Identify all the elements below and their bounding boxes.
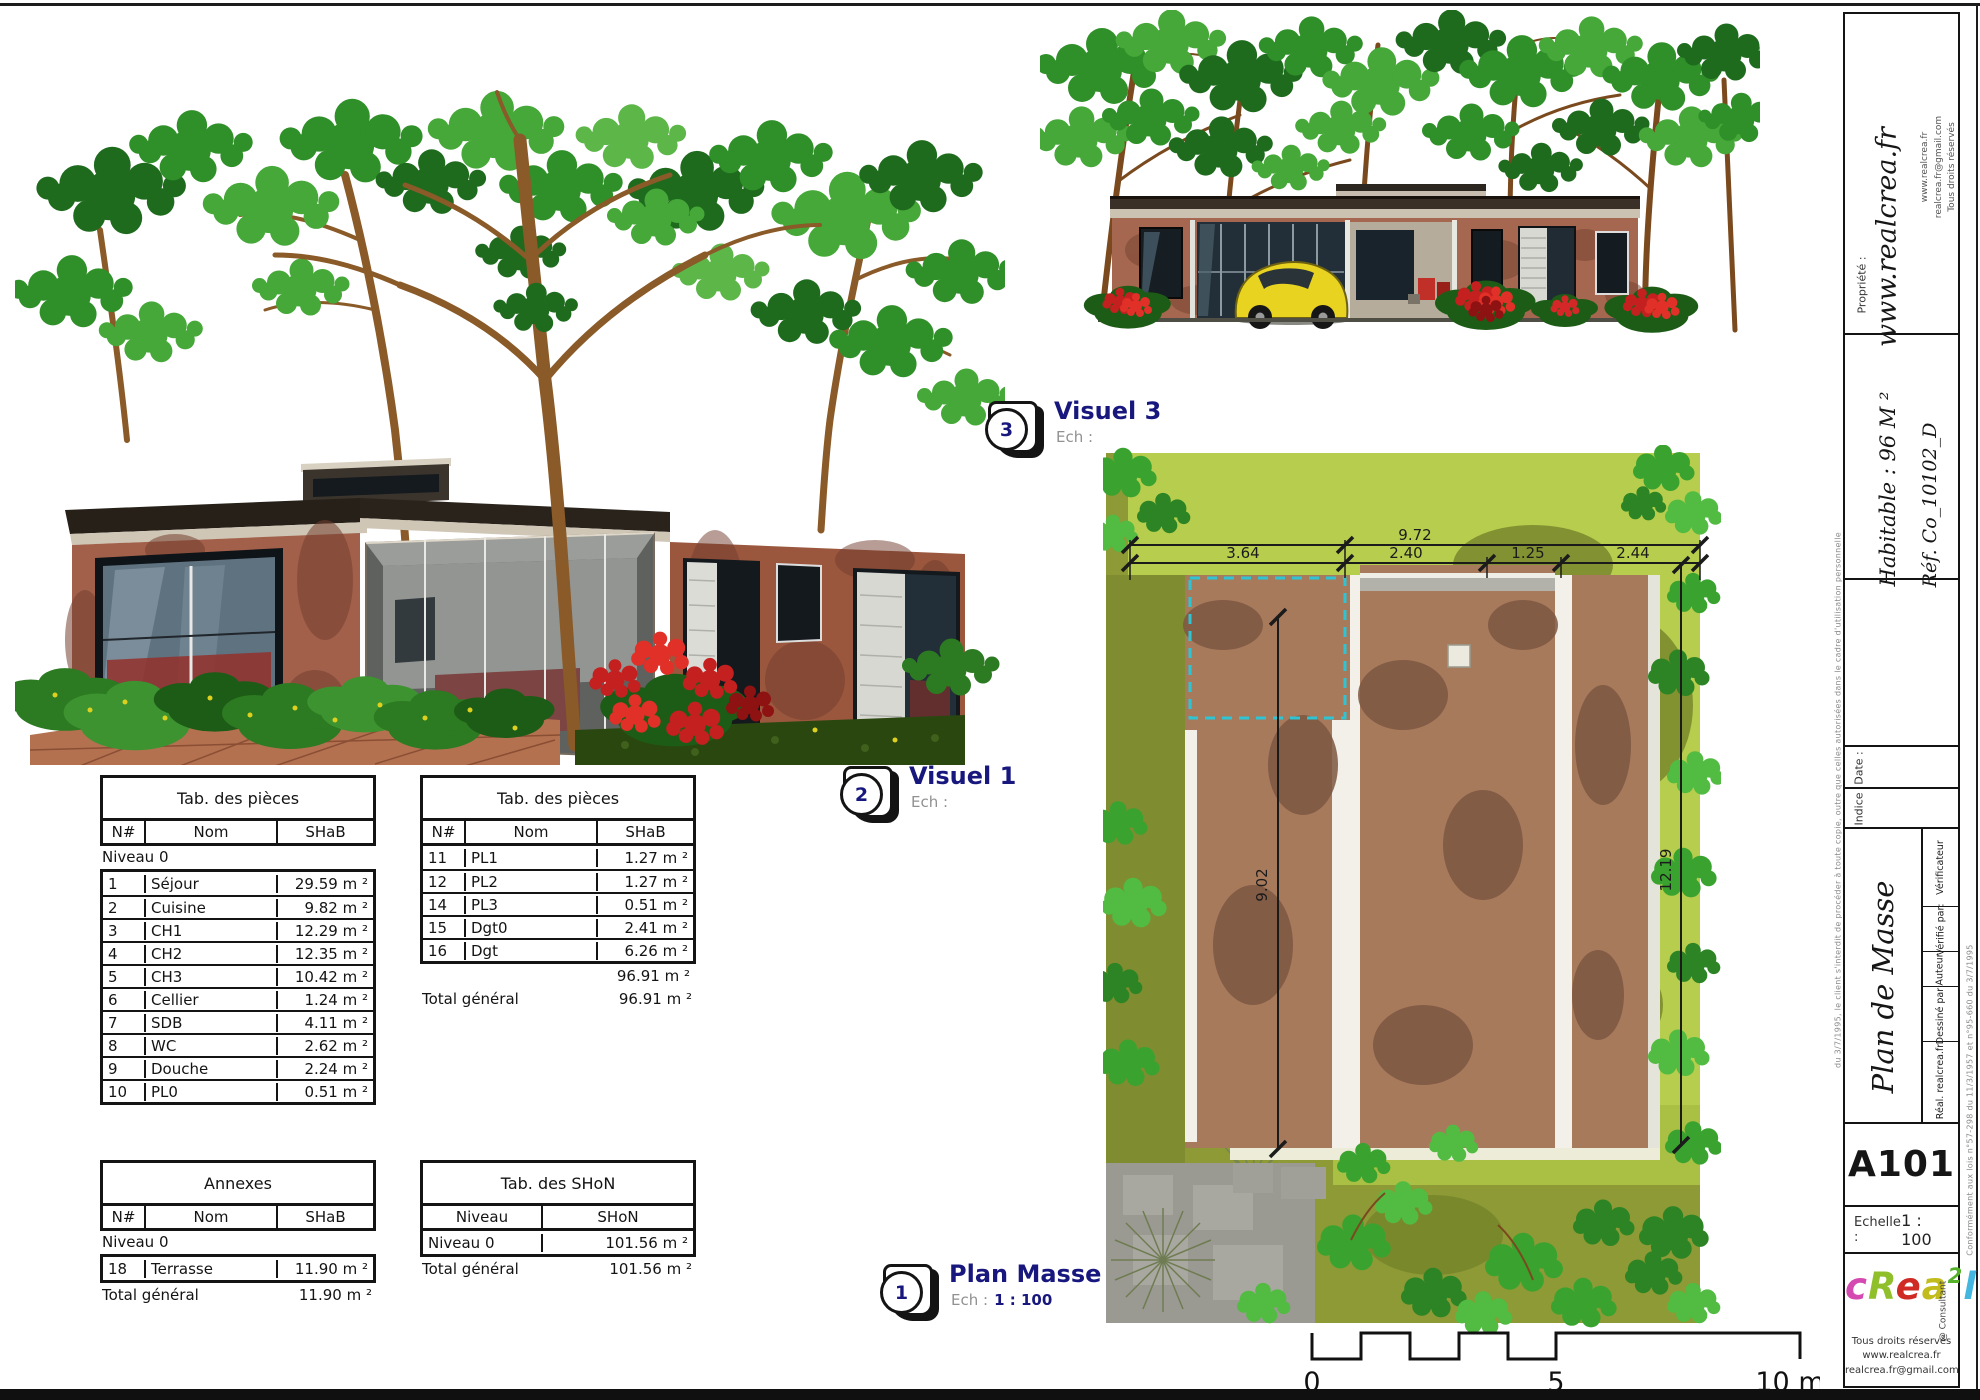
table-header: NiveauSHoN (420, 1203, 696, 1231)
table-cell: PL1 (464, 849, 596, 867)
table-row: 11PL11.27 m ² (423, 846, 693, 869)
table-section-label: Niveau 0 (100, 846, 376, 869)
propriete-value: www.realcrea.fr (1872, 127, 1903, 347)
logo-letter: R (1868, 1265, 1896, 1308)
svg-text:2.44: 2.44 (1616, 544, 1649, 562)
titleblock-date-cell: Date : (1845, 747, 1958, 789)
view-title: Plan Masse (949, 1260, 1101, 1288)
table-cell: 1.24 m ² (276, 991, 373, 1009)
logo-letter: e (1896, 1265, 1922, 1308)
header-cell: SHoN (541, 1206, 693, 1228)
legal-text-left: du 3/7/1995, le client s'interdit de pro… (1834, 532, 1843, 1068)
titleblock-indice-cell: Indice (1845, 789, 1958, 829)
header-cell: Nom (464, 821, 596, 843)
header-cell: SHaB (596, 821, 693, 843)
contact-block: www.realcrea.fr realcrea.fr@gmail.com To… (1919, 116, 1960, 218)
svg-text:0: 0 (1303, 1367, 1320, 1398)
verificateur-cell: Vérificateur (1923, 829, 1958, 907)
table-section-label: Niveau 0 (100, 1231, 376, 1254)
table-cell: PL2 (464, 873, 596, 891)
table-cell: Dgt (464, 942, 596, 960)
table-cell: Douche (144, 1060, 276, 1078)
view-scale: Ech :1 : 100 (951, 1291, 1052, 1309)
table-total: Total général 96.91 m ² (420, 987, 696, 1012)
table-row: 4CH212.35 m ² (103, 941, 373, 964)
table-cell: CH2 (144, 945, 276, 963)
table-row: 10PL00.51 m ² (103, 1079, 373, 1102)
table-cell: 14 (423, 896, 464, 914)
title-block: Propriété : www.realcrea.fr www.realcrea… (1843, 12, 1960, 1388)
table-cell: 2 (103, 899, 144, 917)
svg-text:9.72: 9.72 (1398, 526, 1431, 544)
table-title: Annexes (100, 1160, 376, 1206)
table-row: 3CH112.29 m ² (103, 918, 373, 941)
table-pieces-2: Tab. des pièces N#NomSHaB 11PL11.27 m ²1… (420, 775, 696, 1012)
header-cell: SHaB (276, 1206, 373, 1228)
header-cell: N# (423, 821, 464, 843)
table-cell: 1.27 m ² (596, 873, 693, 891)
propriete-label: Propriété : (1856, 256, 1869, 313)
table-title: Tab. des pièces (100, 775, 376, 821)
table-cell: 3 (103, 922, 144, 940)
table-row: 18Terrasse11.90 m ² (103, 1257, 373, 1280)
table-cell: 15 (423, 919, 464, 937)
view-scale: Ech : (1056, 428, 1099, 446)
sheet-top-border (0, 3, 1980, 6)
table-row: 1Séjour29.59 m ² (103, 872, 373, 895)
table-annexes: Annexes N#NomSHaB Niveau 0 18Terrasse11.… (100, 1160, 376, 1308)
drawing-sheet: { "views": { "visuel3": {"badge":"3","ti… (0, 0, 1980, 1400)
view-scale: Ech : (911, 793, 954, 811)
table-cell: Terrasse (144, 1260, 276, 1278)
table-cell: 8 (103, 1037, 144, 1055)
table-cell: 1.27 m ² (596, 849, 693, 867)
table-row: 14PL30.51 m ² (423, 892, 693, 915)
table-subtotal: 96.91 m ² (420, 964, 696, 987)
table-cell: 0.51 m ² (596, 896, 693, 914)
table-body: 18Terrasse11.90 m ² (100, 1254, 376, 1283)
table-cell: Dgt0 (464, 919, 596, 937)
header-cell: Niveau (423, 1206, 541, 1228)
table-cell: Séjour (144, 875, 276, 893)
sheet-title: Plan de Masse (1866, 881, 1900, 1094)
view-number: 1 (880, 1271, 923, 1314)
table-cell: 12.35 m ² (276, 945, 373, 963)
total-label: Total général (422, 990, 519, 1012)
table-row: 15Dgt02.41 m ² (423, 915, 693, 938)
svg-text:1.25: 1.25 (1511, 544, 1544, 562)
header-cell: Nom (144, 1206, 276, 1228)
svg-text:5: 5 (1547, 1367, 1564, 1398)
table-cell: PL0 (144, 1083, 276, 1101)
titleblock-scale-cell: Echelle : 1 : 100 (1845, 1207, 1958, 1254)
titleblock-area-cell: Habitable : 96 M ² Réf. Co_10102_D (1845, 335, 1958, 580)
table-cell: 4.11 m ² (276, 1014, 373, 1032)
table-cell: 4 (103, 945, 144, 963)
titleblock-empty-cell (1845, 580, 1958, 747)
table-cell: 29.59 m ² (276, 875, 373, 893)
table-body: 1Séjour29.59 m ²2Cuisine9.82 m ²3CH112.2… (100, 869, 376, 1105)
table-cell: Cuisine (144, 899, 276, 917)
table-cell: 6.26 m ² (596, 942, 693, 960)
date-label: Date : (1853, 751, 1866, 785)
table-row: 9Douche2.24 m ² (103, 1056, 373, 1079)
table-cell: CH1 (144, 922, 276, 940)
table-row: 8WC2.62 m ² (103, 1033, 373, 1056)
table-title: Tab. des SHoN (420, 1160, 696, 1206)
view-label-plan-masse: 1 Plan Masse Ech :1 : 100 (883, 1260, 1203, 1332)
logo-letter: c (1845, 1265, 1868, 1308)
view-label-visuel3: 3 Visuel 3 Ech : (988, 397, 1308, 469)
credit-line: Tous droits réservés (1845, 1335, 1958, 1350)
table-row: 2Cuisine9.82 m ² (103, 895, 373, 918)
sheet-number: A101 (1845, 1124, 1958, 1207)
table-row: 16Dgt6.26 m ² (423, 938, 693, 961)
view-badge-icon: 1 (883, 1264, 945, 1326)
table-header: N#NomSHaB (100, 818, 376, 846)
header-cell: N# (103, 821, 144, 843)
render-visuel3-elevation (1040, 10, 1760, 395)
table-cell: 2.62 m ² (276, 1037, 373, 1055)
table-row: Niveau 0101.56 m ² (423, 1231, 693, 1254)
indice-label: Indice (1853, 792, 1866, 825)
table-cell: 11 (423, 849, 464, 867)
table-row: 5CH310.42 m ² (103, 964, 373, 987)
svg-text:3.64: 3.64 (1226, 544, 1259, 562)
plan-masse-drawing: 9.72 3.64 2.40 1.25 2.44 9.02 12.19 (1103, 445, 1721, 1333)
render-visuel1-perspective (15, 80, 1005, 765)
echelle-value: 1 : 100 (1901, 1211, 1949, 1249)
header-cell: N# (103, 1206, 144, 1228)
total-label: Total général (102, 1286, 199, 1308)
table-body: Niveau 0101.56 m ² (420, 1228, 696, 1257)
table-cell: Cellier (144, 991, 276, 1009)
total-value: 101.56 m ² (609, 1260, 692, 1282)
table-cell: 101.56 m ² (541, 1234, 693, 1252)
table-cell: 2.41 m ² (596, 919, 693, 937)
view-number: 3 (985, 408, 1028, 451)
table-cell: 12.29 m ² (276, 922, 373, 940)
table-cell: 16 (423, 942, 464, 960)
table-cell: 1 (103, 875, 144, 893)
credits-block: Tous droits réservés www.realcrea.fr rea… (1845, 1335, 1958, 1379)
view-number: 2 (840, 773, 883, 816)
table-cell: 0.51 m ² (276, 1083, 373, 1101)
table-cell: 18 (103, 1260, 144, 1278)
signature-column: Vérificateur Vérifié par: Auteur Dessiné… (1921, 829, 1958, 1122)
table-cell: PL3 (464, 896, 596, 914)
credit-line: www.realcrea.fr (1845, 1349, 1958, 1364)
table-body: 11PL11.27 m ²12PL21.27 m ²14PL30.51 m ²1… (420, 843, 696, 964)
table-title: Tab. des pièces (420, 775, 696, 821)
table-cell: 6 (103, 991, 144, 1009)
table-header: N#NomSHaB (420, 818, 696, 846)
habitable-value: Habitable : 96 M ² (1876, 392, 1900, 587)
svg-text:12.19: 12.19 (1657, 849, 1675, 892)
echelle-label: Echelle : (1854, 1215, 1901, 1245)
contact-line: Tous droits réservés (1946, 116, 1960, 218)
table-row: 6Cellier1.24 m ² (103, 987, 373, 1010)
svg-text:9.02: 9.02 (1253, 868, 1271, 901)
view-badge-icon: 2 (843, 766, 905, 828)
view-badge-icon: 3 (988, 401, 1050, 463)
sheet-right-border (1976, 3, 1978, 1389)
contact-line: www.realcrea.fr (1919, 116, 1933, 218)
table-row: 7SDB4.11 m ² (103, 1010, 373, 1033)
auteur-cell: Auteur (1923, 952, 1958, 987)
view-title: Visuel 3 (1054, 397, 1161, 425)
reference-value: Réf. Co_10102_D (1919, 423, 1941, 588)
total-value: 11.90 m ² (299, 1286, 372, 1308)
table-cell: 10 (103, 1083, 144, 1101)
table-shon: Tab. des SHoN NiveauSHoN Niveau 0101.56 … (420, 1160, 696, 1282)
titleblock-logo-cell: cRea2l @ Consultant Tous droits réservés… (1845, 1254, 1958, 1385)
table-cell: 7 (103, 1014, 144, 1032)
scale-bar: 0 5 10 m (1300, 1325, 1820, 1400)
table-total: Total général 11.90 m ² (100, 1283, 376, 1308)
logo-letter: 2 (1948, 1264, 1964, 1288)
view-title: Visuel 1 (909, 762, 1016, 790)
table-cell: 9 (103, 1060, 144, 1078)
header-cell: Nom (144, 821, 276, 843)
table-cell: 2.24 m ² (276, 1060, 373, 1078)
table-cell: 10.42 m ² (276, 968, 373, 986)
contact-line: realcrea.fr@gmail.com (1932, 116, 1946, 218)
consultant-label: @ Consultant (1939, 1281, 1949, 1342)
svg-text:2.40: 2.40 (1389, 544, 1422, 562)
header-cell: SHaB (276, 821, 373, 843)
svg-text:10 m: 10 m (1755, 1367, 1820, 1398)
building-footprint (1183, 565, 1660, 1160)
table-row: 12PL21.27 m ² (423, 869, 693, 892)
table-cell: 12 (423, 873, 464, 891)
titleblock-owner-cell: Propriété : www.realcrea.fr www.realcrea… (1845, 14, 1958, 335)
table-cell: Niveau 0 (423, 1234, 541, 1252)
total-value: 96.91 m ² (619, 990, 692, 1012)
total-label: Total général (422, 1260, 519, 1282)
logo-letter: l (1963, 1265, 1977, 1308)
verifie-par-cell: Vérifié par: (1923, 907, 1958, 952)
table-cell: 11.90 m ² (276, 1260, 373, 1278)
legal-text-right: Conformément aux lois n°57-298 du 11/3/1… (1966, 944, 1975, 1255)
credit-line: realcrea.fr@gmail.com (1845, 1364, 1958, 1379)
table-cell: 5 (103, 968, 144, 986)
table-pieces-1: Tab. des pièces N#NomSHaB Niveau 0 1Séjo… (100, 775, 376, 1105)
dessine-par-cell: Dessiné par: (1923, 987, 1958, 1042)
view-label-visuel1: 2 Visuel 1 Ech : (843, 762, 1163, 834)
table-cell: 9.82 m ² (276, 899, 373, 917)
table-cell: SDB (144, 1014, 276, 1032)
dessine-value-cell: Réal. realcrea.fr (1923, 1042, 1958, 1120)
table-total: Total général 101.56 m ² (420, 1257, 696, 1282)
table-header: N#NomSHaB (100, 1203, 376, 1231)
table-cell: WC (144, 1037, 276, 1055)
titleblock-sheet-title-cell: Plan de Masse Vérificateur Vérifié par: … (1845, 829, 1958, 1124)
table-cell: CH3 (144, 968, 276, 986)
